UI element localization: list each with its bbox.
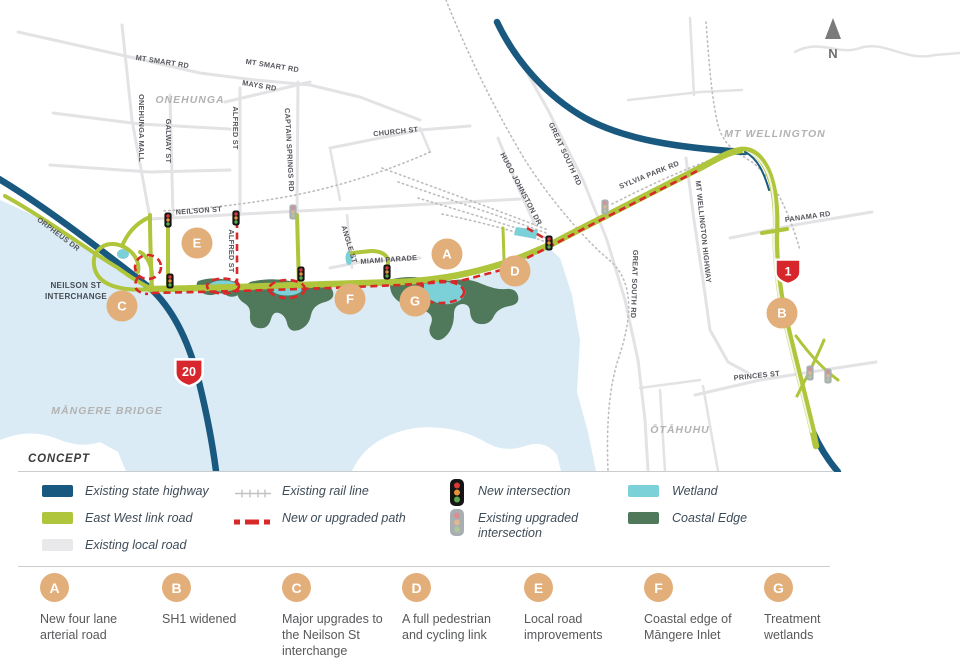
svg-text:NEILSON ST: NEILSON ST xyxy=(50,281,101,290)
svg-text:E: E xyxy=(193,236,202,251)
svg-text:INTERCHANGE: INTERCHANGE xyxy=(45,292,107,301)
existing-upgraded-intersection-icon xyxy=(601,200,608,215)
svg-text:GREAT SOUTH RD: GREAT SOUTH RD xyxy=(629,250,640,319)
svg-text:ŌTĀHUHU: ŌTĀHUHU xyxy=(650,424,710,436)
callout-f: F Coastal edge of Māngere Inlet xyxy=(644,573,756,643)
legend-label: Existing state highway xyxy=(85,484,209,499)
legend-label: New intersection xyxy=(478,484,570,499)
map-circle-c: C xyxy=(107,291,138,322)
svg-text:ALFRED ST: ALFRED ST xyxy=(227,229,236,272)
svg-text:D: D xyxy=(510,264,519,279)
svg-text:G: G xyxy=(410,294,420,309)
dashed-path-symbol xyxy=(234,513,274,531)
map-circle-e: E xyxy=(182,228,213,259)
east-west-link-map-page: 20 1 N MT SMART RD MT SMART RD MAYS RD C… xyxy=(0,0,960,666)
svg-text:MT SMART RD: MT SMART RD xyxy=(135,53,190,70)
legend-label: New or upgraded path xyxy=(282,511,406,526)
new-intersection-icon xyxy=(164,213,171,228)
legend-label: Existing local road xyxy=(85,538,186,553)
new-intersection-icon xyxy=(383,265,390,280)
callout-text: Coastal edge of Māngere Inlet xyxy=(644,611,756,643)
callout-c: C Major upgrades to the Neilson St inter… xyxy=(282,573,390,659)
callout-e: E Local road improvements xyxy=(524,573,632,643)
svg-text:MT SMART RD: MT SMART RD xyxy=(245,57,300,74)
svg-text:F: F xyxy=(346,292,354,307)
state-highway-swatch xyxy=(42,485,73,497)
new-intersection-legend-icon xyxy=(449,478,465,512)
svg-text:N: N xyxy=(828,46,837,61)
svg-text:GALWAY ST: GALWAY ST xyxy=(164,119,173,164)
callouts-separator xyxy=(18,566,830,567)
new-intersection-icon xyxy=(545,236,552,251)
map-circle-d: D xyxy=(500,256,531,287)
svg-text:MĀNGERE BRIDGE: MĀNGERE BRIDGE xyxy=(51,405,162,417)
svg-text:CAPTAIN SPRINGS RD: CAPTAIN SPRINGS RD xyxy=(283,108,296,192)
callout-text: A full pedestrian and cycling link xyxy=(402,611,514,643)
svg-text:B: B xyxy=(777,306,786,321)
svg-text:GREAT SOUTH RD: GREAT SOUTH RD xyxy=(547,121,584,187)
project-map: 20 1 N MT SMART RD MT SMART RD MAYS RD C… xyxy=(0,0,960,472)
callout-text: Local road improvements xyxy=(524,611,632,643)
svg-text:MT WELLINGTON: MT WELLINGTON xyxy=(724,128,825,140)
svg-text:A: A xyxy=(442,247,452,262)
local-road-swatch xyxy=(42,539,73,551)
map-circle-g: G xyxy=(400,286,431,317)
legend-separator xyxy=(18,471,834,472)
new-intersection-icon xyxy=(232,211,239,226)
svg-text:ONEHUNGA MALL: ONEHUNGA MALL xyxy=(137,94,146,162)
link-road-swatch xyxy=(42,512,73,524)
callout-letter-badge: A xyxy=(40,573,69,602)
map-circle-b: B xyxy=(767,298,798,329)
callout-letter-badge: E xyxy=(524,573,553,602)
svg-text:ALFRED ST: ALFRED ST xyxy=(231,106,240,149)
svg-text:20: 20 xyxy=(182,365,196,379)
callout-letter-badge: G xyxy=(764,573,793,602)
callout-text: Treatment wetlands xyxy=(764,611,844,643)
callout-text: Major upgrades to the Neilson St interch… xyxy=(282,611,390,659)
callout-a: A New four lane arterial road xyxy=(40,573,152,643)
sh1-shield-icon: 1 xyxy=(776,260,801,284)
sh20-shield-icon: 20 xyxy=(175,359,202,386)
wetland-swatch xyxy=(628,485,659,497)
legend-label: Existing rail line xyxy=(282,484,369,499)
rail-line-symbol xyxy=(234,486,272,504)
legend-label: East West link road xyxy=(85,511,192,526)
new-intersection-icon xyxy=(166,274,173,289)
new-intersection-icon xyxy=(297,267,304,282)
legend-label: Coastal Edge xyxy=(672,511,747,526)
svg-text:1: 1 xyxy=(785,264,792,278)
svg-text:HUGO JOHNSTON DR: HUGO JOHNSTON DR xyxy=(498,151,544,227)
callout-text: SH1 widened xyxy=(162,611,272,627)
legend-label: Existing upgraded intersection xyxy=(478,511,598,542)
existing-upgraded-intersection-icon xyxy=(289,205,296,220)
coastal-edge-swatch xyxy=(628,512,659,524)
svg-text:ONEHUNGA: ONEHUNGA xyxy=(155,94,224,106)
north-arrow-icon: N xyxy=(825,18,841,61)
svg-text:C: C xyxy=(117,299,127,314)
callout-text: New four lane arterial road xyxy=(40,611,152,643)
existing-upgraded-intersection-icon xyxy=(806,366,813,381)
callout-b: B SH1 widened xyxy=(162,573,272,627)
existing-upgraded-intersection-legend-icon xyxy=(449,508,465,542)
map-circle-a: A xyxy=(432,239,463,270)
callout-d: D A full pedestrian and cycling link xyxy=(402,573,514,643)
legend-label: Wetland xyxy=(672,484,718,499)
callout-letter-badge: D xyxy=(402,573,431,602)
callout-letter-badge: C xyxy=(282,573,311,602)
concept-label: CONCEPT xyxy=(28,453,90,465)
map-circle-f: F xyxy=(335,284,366,315)
svg-text:ANGLE ST: ANGLE ST xyxy=(339,224,359,264)
callout-letter-badge: B xyxy=(162,573,191,602)
callout-letter-badge: F xyxy=(644,573,673,602)
existing-upgraded-intersection-icon xyxy=(824,369,831,384)
callout-g: G Treatment wetlands xyxy=(764,573,844,643)
